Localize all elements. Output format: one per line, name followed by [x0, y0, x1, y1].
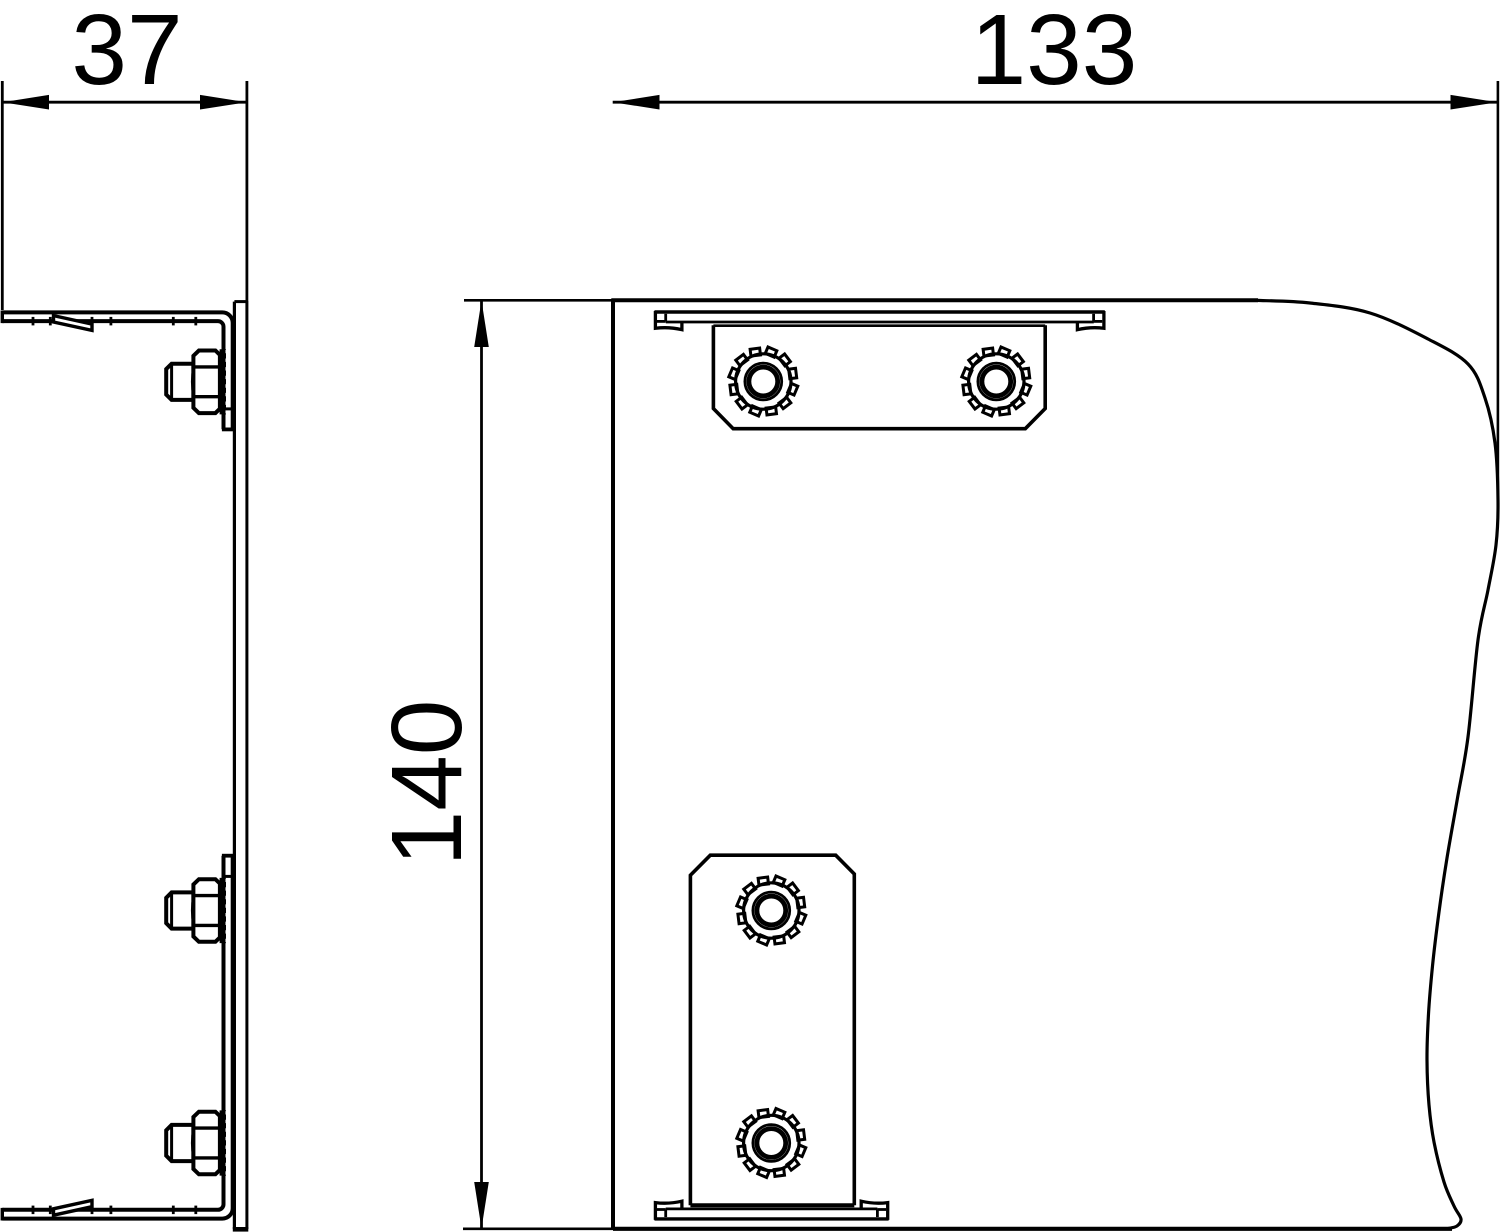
svg-text:140: 140	[371, 700, 483, 867]
svg-text:37: 37	[71, 0, 182, 106]
svg-text:133: 133	[971, 0, 1138, 106]
